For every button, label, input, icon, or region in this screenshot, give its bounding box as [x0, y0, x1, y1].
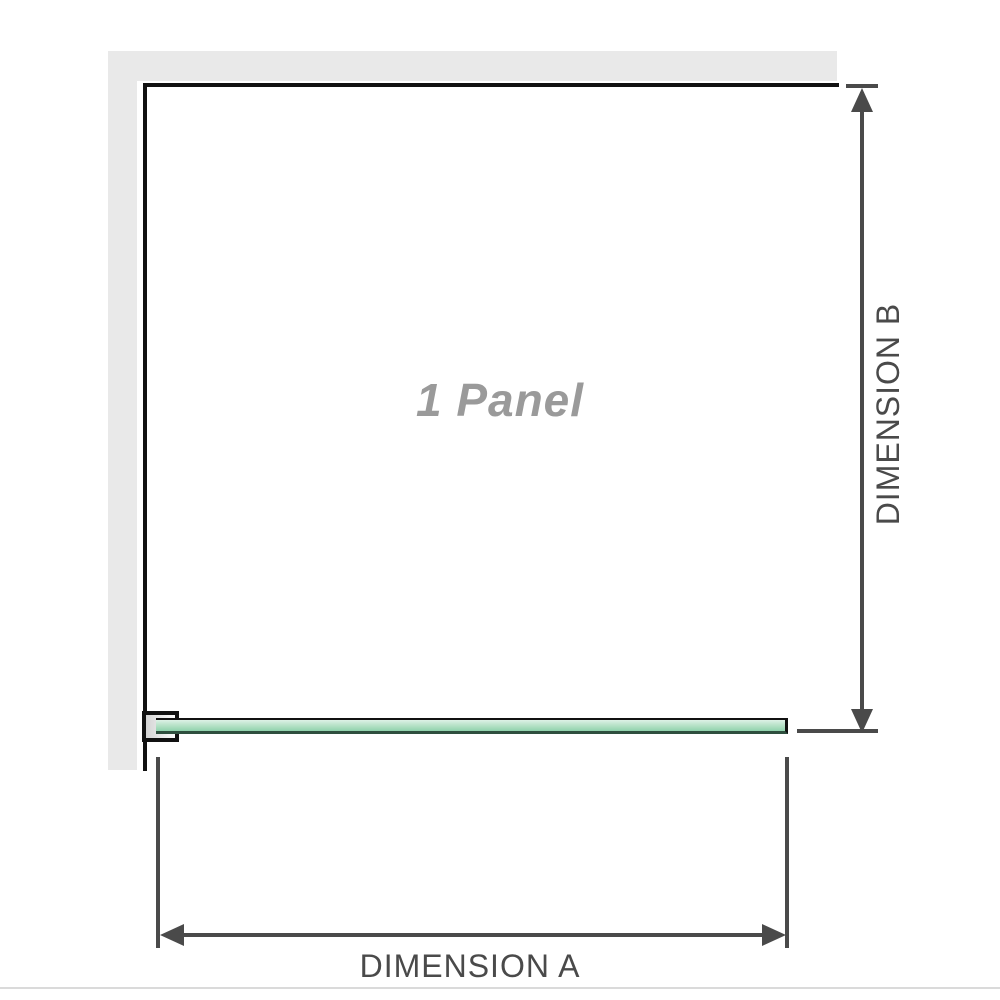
bottom-separator-line — [0, 987, 1000, 989]
dimension-b-label: DIMENSION B — [738, 264, 1000, 564]
dimension-a-left-extension-line — [156, 757, 160, 948]
diagram-canvas: 1 Panel DIMENSION B DIMENSION A — [0, 0, 1000, 1000]
wall-left-strip — [108, 51, 137, 770]
panel-outline-left-edge — [143, 83, 147, 771]
dimension-a-label: DIMENSION A — [270, 944, 670, 988]
arrowhead-down-icon — [851, 709, 873, 733]
glass-panel-bar — [156, 718, 788, 734]
arrowhead-up-icon — [851, 88, 873, 112]
panel-count-label: 1 Panel — [300, 368, 700, 432]
dimension-a-right-extension-line — [785, 757, 789, 948]
arrowhead-left-icon — [160, 924, 184, 946]
dimension-a-line — [166, 933, 780, 937]
wall-top-strip — [108, 51, 837, 81]
arrowhead-right-icon — [762, 924, 786, 946]
panel-outline-top-edge — [143, 83, 839, 87]
